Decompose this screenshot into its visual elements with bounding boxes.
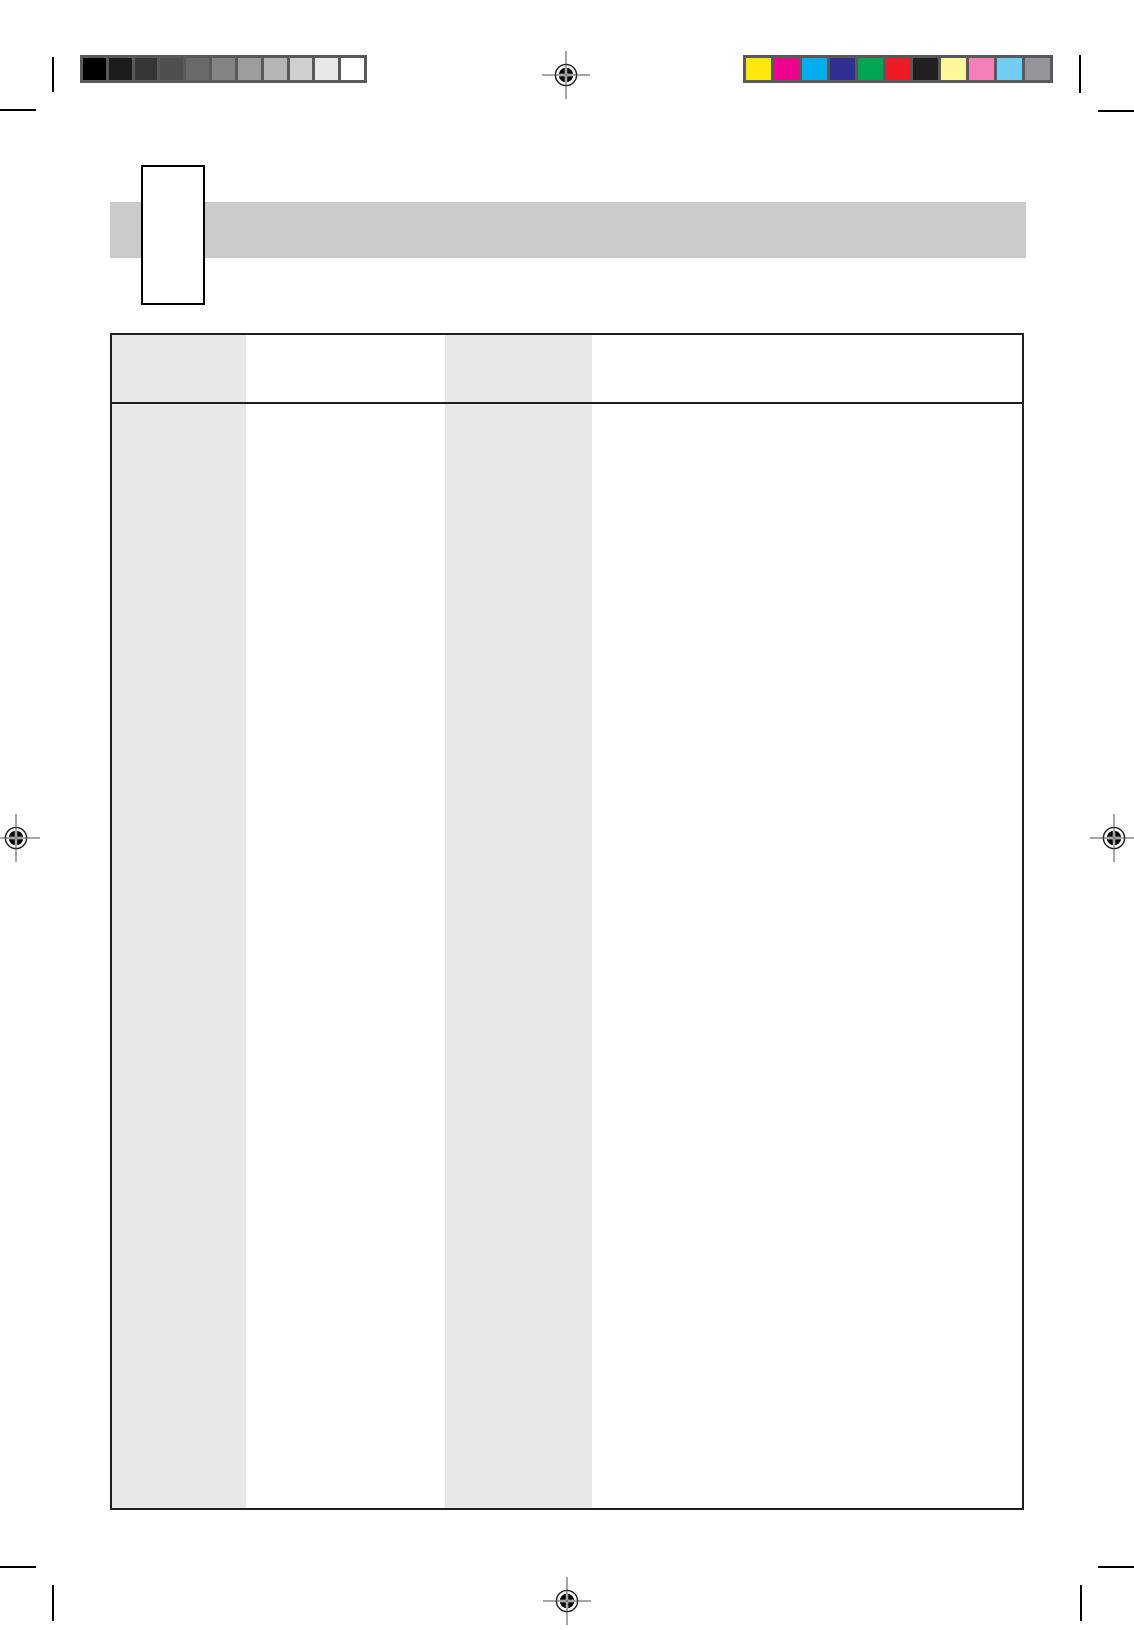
crop-mark-bottom-left-horizontal	[0, 1566, 36, 1568]
crop-mark-top-left-vertical	[52, 57, 54, 92]
calibration-swatch	[830, 58, 855, 80]
crop-mark-top-right-vertical	[1079, 55, 1081, 93]
calibration-swatch	[315, 58, 338, 80]
registration-mark-icon	[0, 814, 40, 862]
calibration-swatch	[212, 58, 235, 80]
calibration-swatch	[238, 58, 261, 80]
calibration-swatch	[913, 58, 938, 80]
table-header-row	[112, 335, 1022, 404]
color-calibration-bar	[743, 55, 1053, 83]
calibration-swatch	[186, 58, 209, 80]
calibration-swatch	[83, 58, 106, 80]
calibration-swatch	[264, 58, 287, 80]
calibration-swatch	[802, 58, 827, 80]
table-body-row	[112, 404, 1022, 1508]
crop-mark-top-left-horizontal	[0, 109, 36, 111]
calibration-swatch	[341, 58, 364, 80]
crop-mark-bottom-left-vertical	[52, 1585, 54, 1621]
main-table	[110, 333, 1024, 1510]
registration-mark-icon	[1090, 814, 1134, 862]
grayscale-calibration-bar	[80, 55, 367, 83]
calibration-swatch	[969, 58, 994, 80]
crop-mark-bottom-right-horizontal	[1098, 1566, 1134, 1568]
chapter-tab-box	[141, 165, 205, 305]
registration-mark-icon	[542, 51, 590, 99]
calibration-swatch	[135, 58, 158, 80]
section-title-banner	[110, 202, 1026, 258]
crop-mark-top-right-horizontal	[1098, 110, 1134, 112]
calibration-swatch	[858, 58, 883, 80]
registration-mark-icon	[543, 1577, 591, 1625]
calibration-swatch	[290, 58, 313, 80]
calibration-swatch	[109, 58, 132, 80]
calibration-swatch	[997, 58, 1022, 80]
print-proof-page: { "page": { "background_color": "#ffffff…	[0, 0, 1134, 1621]
calibration-swatch	[774, 58, 799, 80]
calibration-swatch	[1025, 58, 1050, 80]
calibration-swatch	[746, 58, 771, 80]
calibration-swatch	[886, 58, 911, 80]
calibration-swatch	[941, 58, 966, 80]
calibration-swatch	[160, 58, 183, 80]
crop-mark-bottom-right-vertical	[1080, 1585, 1082, 1621]
